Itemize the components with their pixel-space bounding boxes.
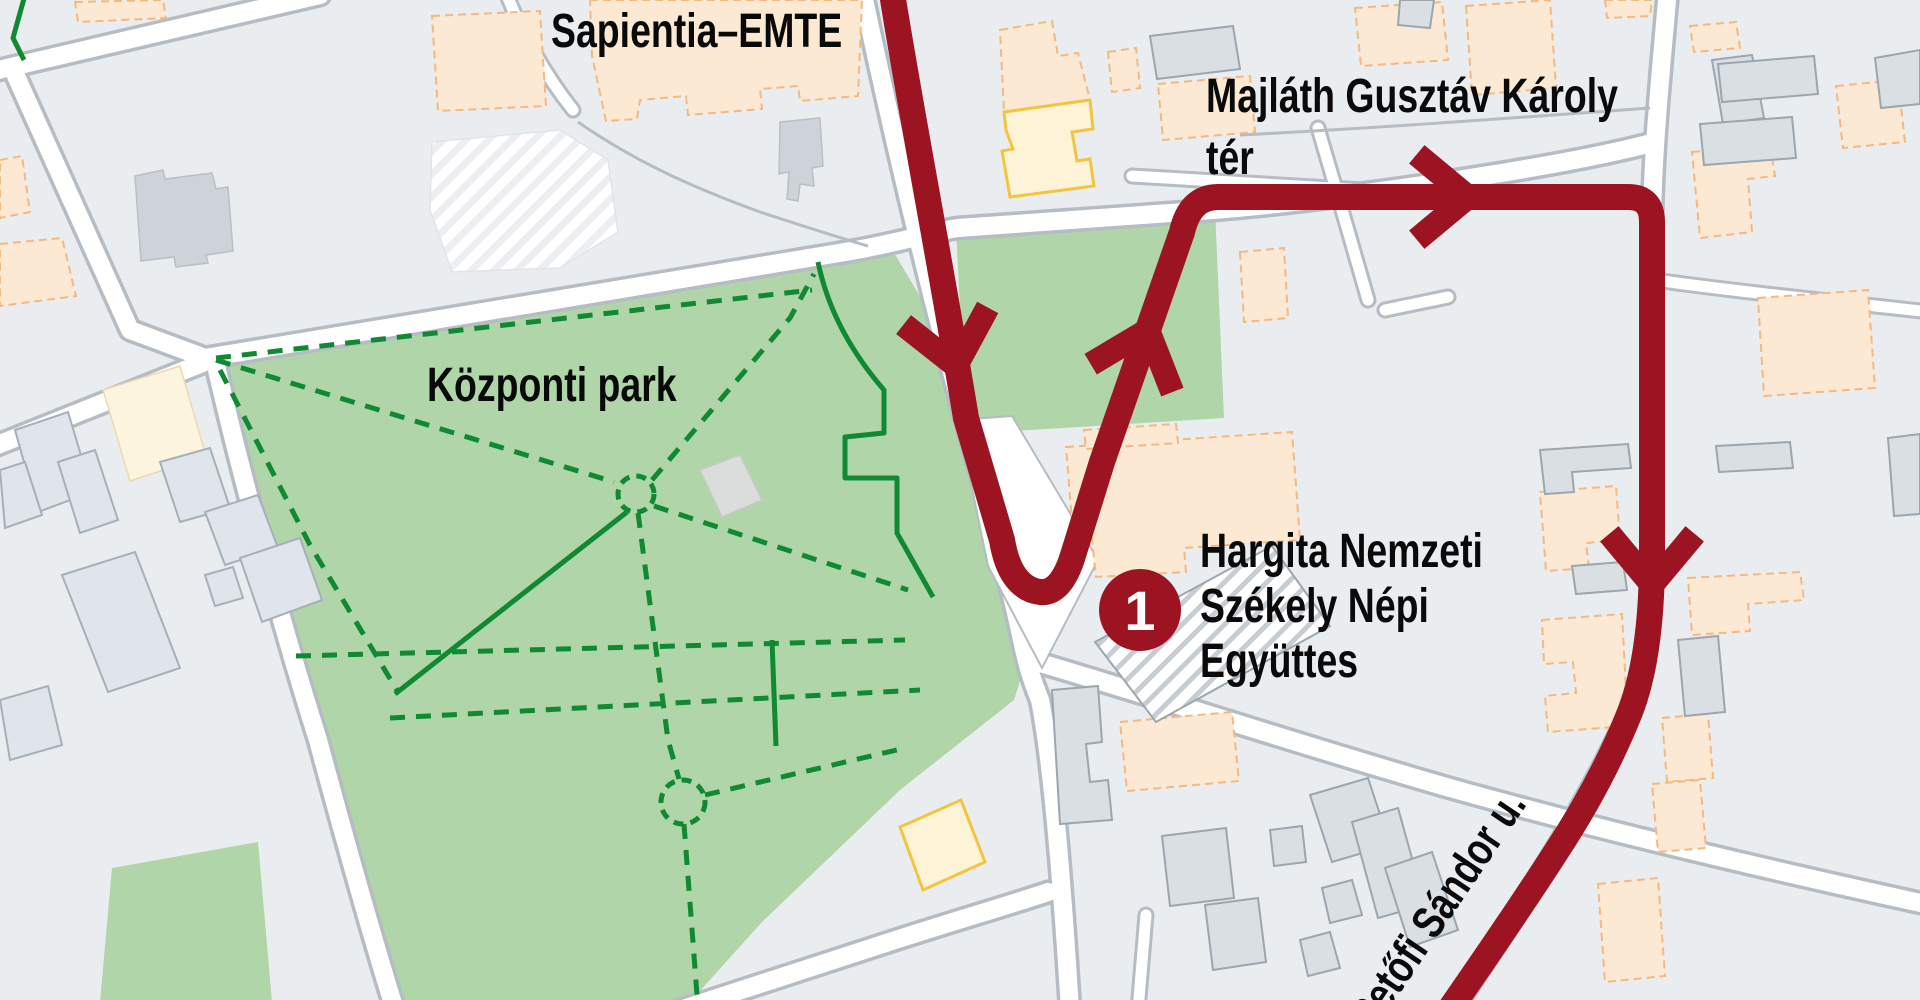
label-square: Majláth Gusztáv Károly tér [1206,66,1618,190]
footway [578,122,868,246]
label-square-line1: Majláth Gusztáv Károly [1206,66,1618,128]
green-corner-area [100,842,272,1000]
label-poi-line3: Együttes [1200,634,1483,689]
label-university-text: Sapientia–EMTE [551,4,842,59]
church-building [779,118,823,201]
label-poi: Hargita Nemzeti Székely Népi Együttes [1200,524,1483,689]
label-park: Központi park [427,358,677,413]
map-canvas: 1 [0,0,1920,1000]
label-poi-line2: Székely Népi [1200,579,1483,634]
label-square-line2: tér [1206,128,1618,190]
stop-badge: 1 [1099,569,1181,651]
label-park-text: Központi park [427,358,677,413]
transit-map: 1 Sapientia–EMTE Majláth Gusztáv Károly … [0,0,1920,1000]
label-university: Sapientia–EMTE [551,4,842,59]
label-poi-line1: Hargita Nemzeti [1200,524,1483,579]
hatched-area [430,130,618,272]
stop-badge-number: 1 [1124,579,1155,642]
